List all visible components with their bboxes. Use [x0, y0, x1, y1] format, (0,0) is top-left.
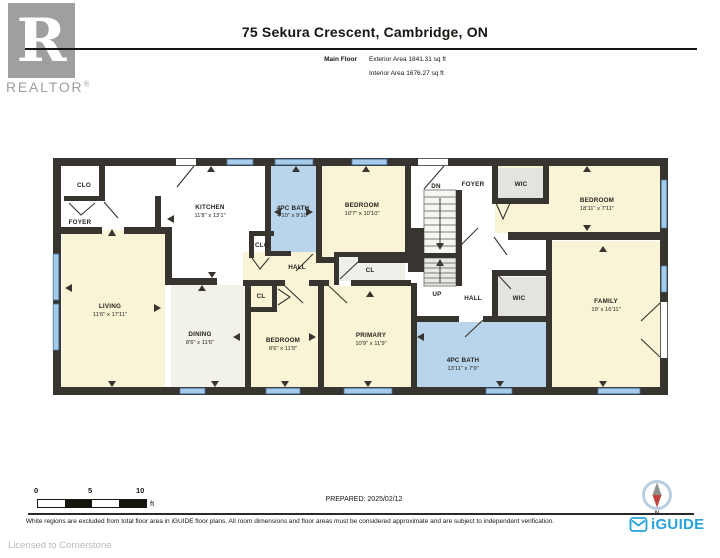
label-stairs-dn: DN	[431, 183, 441, 190]
scale-tick-0: 0	[34, 486, 38, 495]
iguide-mark-icon	[629, 516, 648, 533]
label-bedroom-bottom: BEDROOM	[266, 337, 300, 344]
label-wic-top: WIC	[515, 181, 528, 188]
label-bath-bottom: 4PC BATH	[447, 357, 480, 364]
iguide-wordmark: iGUIDE	[651, 516, 704, 533]
label-foyer-top: FOYER	[462, 181, 485, 188]
room-fills	[57, 160, 665, 392]
room-bath-bottom	[417, 322, 546, 387]
dims-bedroom-bottom: 8'6" x 11'9"	[269, 346, 297, 352]
label-primary: PRIMARY	[356, 332, 387, 339]
scale-bar	[37, 499, 147, 508]
floorplan-drawing: CLO FOYER KITCHEN 11'8" x 13'1" 4PC BATH…	[0, 0, 720, 558]
footer-divider	[28, 513, 694, 515]
dims-dining: 8'6" x 11'6"	[186, 340, 214, 346]
scale-segment	[38, 500, 65, 507]
scale-unit: ft	[150, 499, 154, 508]
dims-living: 11'6" x 17'11"	[93, 312, 127, 318]
label-clo-topleft: CLO	[77, 182, 91, 189]
dims-bedroom-top: 10'7" x 10'10"	[344, 211, 379, 217]
staircase	[424, 190, 456, 286]
scale-tick-10: 10	[136, 486, 144, 495]
label-dining: DINING	[188, 331, 211, 338]
label-stairs-up: UP	[432, 291, 441, 298]
scale-segment	[119, 500, 146, 507]
label-bath-top: 4PC BATH	[277, 205, 310, 212]
label-family: FAMILY	[594, 298, 618, 305]
dims-family: 19' x 16'11"	[591, 307, 620, 313]
iguide-logo: iGUIDE	[629, 516, 704, 533]
room-family	[552, 241, 660, 388]
dims-primary: 10'9" x 11'9"	[355, 341, 386, 347]
label-foyer-left: FOYER	[69, 219, 92, 226]
disclaimer-text: White regions are excluded from total fl…	[10, 518, 570, 525]
label-hall-right: HALL	[464, 295, 482, 302]
compass-icon: N	[640, 479, 676, 517]
scale-tick-5: 5	[88, 486, 92, 495]
label-wic-bottom: WIC	[513, 295, 526, 302]
dims-kitchen: 11'8" x 13'1"	[194, 213, 225, 219]
scale-segment	[65, 500, 92, 507]
label-kitchen: KITCHEN	[195, 204, 225, 211]
scale-segment	[92, 500, 119, 507]
label-bedroom-top: BEDROOM	[345, 202, 379, 209]
dims-bedroom-right: 18'11" x 7'11"	[580, 206, 614, 212]
license-text: Licensed to Cornerstone	[8, 540, 112, 551]
prepared-date: PREPARED: 2025/02/12	[264, 496, 464, 503]
label-clo-small: CLO	[255, 242, 269, 249]
label-cl-bedroom: CL	[257, 293, 266, 300]
label-hall-center: HALL	[288, 264, 306, 271]
dims-bath-top: 4'10" x 9'10"	[277, 213, 309, 219]
label-living: LIVING	[99, 303, 121, 310]
floorplan-page: { "header": { "logo_letter": "R", "logo_…	[0, 0, 720, 558]
label-bedroom-right: BEDROOM	[580, 197, 614, 204]
dims-bath-bottom: 13'11" x 7'9"	[447, 366, 478, 372]
label-cl-center: CL	[366, 267, 375, 274]
